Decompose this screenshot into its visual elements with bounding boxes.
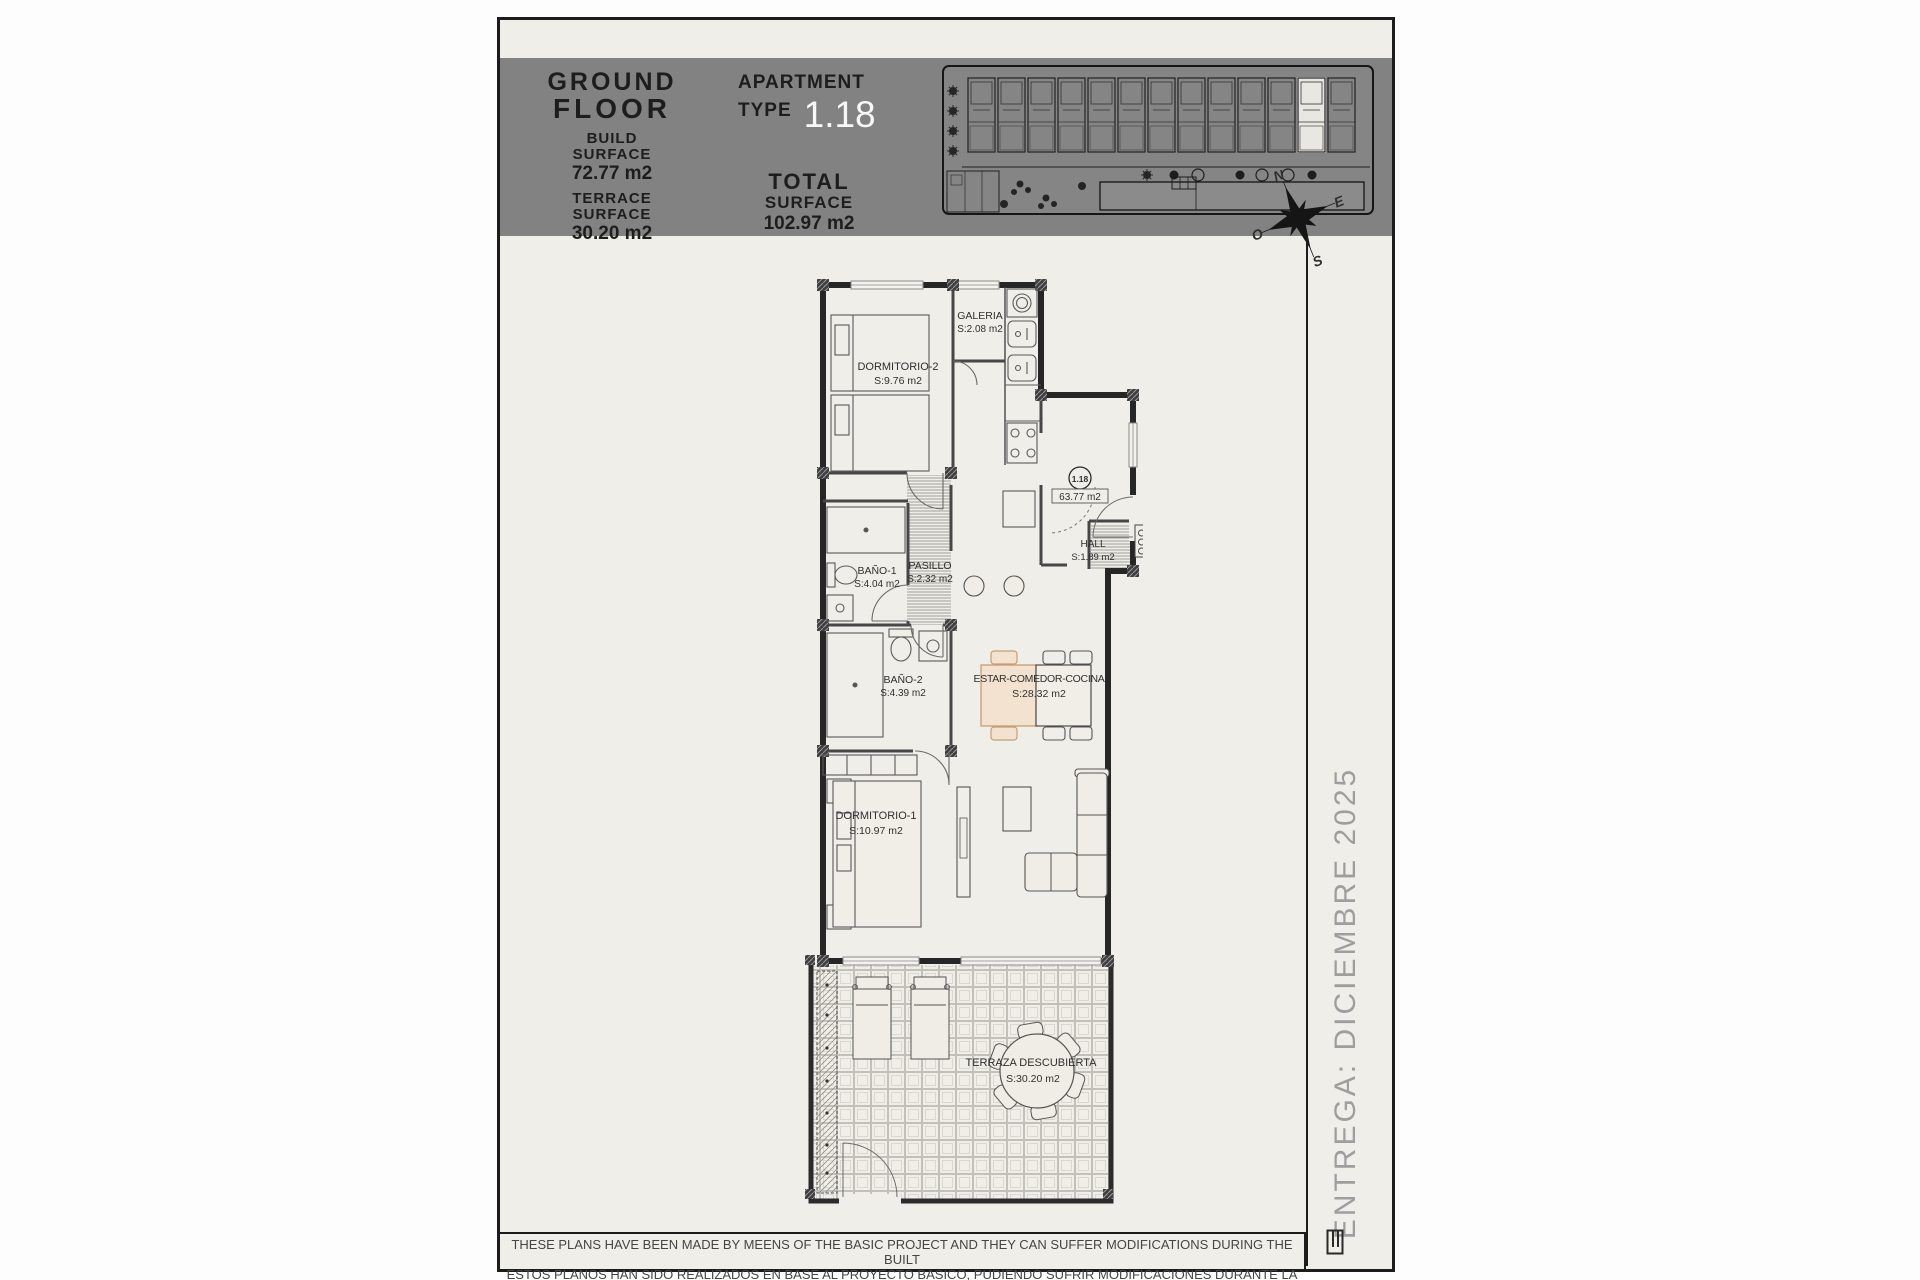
total-surface-value: 102.97 m2: [744, 212, 874, 236]
room-label-bano-2: BAÑO-2 S:4.39 m2: [880, 673, 926, 699]
toilet: [827, 563, 835, 587]
double-bed: [833, 781, 921, 927]
floor-title-block: GROUND FLOOR BUILD SURFACE 72.77 m2 TERR…: [528, 70, 696, 245]
type-value: 1.18: [804, 98, 876, 132]
dining-chair: [1043, 727, 1065, 740]
type-label: TYPE: [738, 100, 792, 122]
total-surface-block: TOTAL SURFACE 102.97 m2: [744, 170, 874, 236]
svg-text:BAÑO-2: BAÑO-2: [883, 673, 922, 686]
svg-text:S:28.32 m2: S:28.32 m2: [1012, 688, 1066, 700]
dining-chair: [1070, 727, 1092, 740]
sink: [1008, 321, 1036, 347]
dining-chair: [1043, 651, 1065, 664]
svg-text:GALERIA: GALERIA: [957, 310, 1003, 322]
bano1-door-arc: [872, 585, 908, 621]
svg-text:S:2.08 m2: S:2.08 m2: [957, 324, 1003, 335]
toilet: [889, 629, 913, 637]
compass-icon: N E S O: [1252, 170, 1344, 270]
apartment-label: APARTMENT: [738, 72, 948, 94]
sun-lounger: [853, 977, 892, 1059]
unit-number-text: 1.18: [1072, 474, 1089, 484]
galeria-kitchen: [953, 287, 1041, 527]
svg-text:DORMITORIO-1: DORMITORIO-1: [835, 810, 916, 822]
dorm1-door-arc: [915, 751, 949, 785]
fridge: [1003, 491, 1035, 527]
delivery-note: ENTREGA: DICIEMBRE 2025: [1329, 767, 1363, 1239]
dining-chair: [1070, 651, 1092, 664]
bano2-door-arc: [911, 625, 943, 657]
sink: [1008, 355, 1036, 381]
header-band: GROUND FLOOR BUILD SURFACE 72.77 m2 TERR…: [500, 58, 1392, 236]
title-block-rule: [1306, 236, 1308, 1266]
compass-west-label: O: [1252, 225, 1265, 244]
svg-text:BAÑO-1: BAÑO-1: [857, 564, 896, 577]
floor-title-line2: FLOOR: [528, 95, 696, 123]
compass-south-label: S: [1310, 251, 1325, 270]
terrace-surface-value: 30.20 m2: [528, 223, 696, 245]
room-label-bano-1: BAÑO-1 S:4.04 m2: [854, 564, 900, 590]
floor-plan: TERRAZA DESCUBIERTA S:30.20 m2: [803, 273, 1143, 1223]
room-bano-1: [827, 507, 908, 621]
washbasin: [827, 595, 853, 621]
svg-text:S:4.39 m2: S:4.39 m2: [880, 688, 926, 699]
useful-area-text: 63.77 m2: [1059, 492, 1101, 503]
compass-east-label: E: [1331, 192, 1344, 211]
terrace-zone: TERRAZA DESCUBIERTA S:30.20 m2: [811, 963, 1111, 1206]
footer-symbol-icon: [1326, 1229, 1344, 1255]
floor-title-line1: GROUND: [528, 70, 696, 95]
svg-text:S:30.20 m2: S:30.20 m2: [1006, 1073, 1060, 1085]
total-label1: TOTAL: [744, 170, 874, 193]
svg-text:S:4.04 m2: S:4.04 m2: [854, 579, 900, 590]
terrace-surface-label1: TERRACE: [528, 191, 696, 207]
svg-text:PASILLO: PASILLO: [909, 560, 952, 572]
coffee-table: [1003, 787, 1031, 831]
disclaimer-line-en: THESE PLANS HAVE BEEN MADE BY MEENS OF T…: [500, 1237, 1304, 1267]
total-label2: SURFACE: [744, 193, 874, 212]
svg-text:HALL: HALL: [1080, 539, 1105, 550]
room-dormitorio-1: [823, 751, 949, 929]
dining-chair-accent: [991, 727, 1017, 740]
sofa: [1077, 773, 1107, 897]
washing-machine: [1007, 289, 1037, 317]
sun-lounger: [911, 977, 950, 1059]
build-surface-value: 72.77 m2: [528, 163, 696, 185]
svg-text:TERRAZA DESCUBIERTA: TERRAZA DESCUBIERTA: [965, 1057, 1097, 1069]
svg-text:S:1.89 m2: S:1.89 m2: [1071, 552, 1114, 563]
build-surface-label1: BUILD: [528, 131, 696, 147]
room-label-galeria: GALERIA S:2.08 m2: [957, 310, 1003, 335]
svg-text:DORMITORIO-2: DORMITORIO-2: [857, 361, 938, 373]
pasillo-floor-hatch: [907, 475, 951, 625]
gate-opening: [839, 1194, 901, 1206]
screenshot-stage: GROUND FLOOR BUILD SURFACE 72.77 m2 TERR…: [0, 0, 1920, 1280]
disclaimer-line-es: ESTOS PLANOS HAN SIDO REALIZADOS EN BASE…: [500, 1267, 1304, 1280]
wardrobe: [823, 755, 917, 775]
build-surface-label2: SURFACE: [528, 147, 696, 163]
svg-text:ESTAR-COMEDOR-COCINA: ESTAR-COMEDOR-COCINA: [974, 673, 1105, 685]
room-label-dormitorio-2: DORMITORIO-2 S:9.76 m2: [857, 361, 938, 387]
svg-text:S:10.97 m2: S:10.97 m2: [849, 825, 903, 837]
room-estar-comedor: [957, 576, 1109, 897]
bar-stool: [1004, 576, 1024, 596]
dining-chair-accent: [991, 651, 1017, 664]
tv-unit: [957, 787, 970, 897]
disclaimer-footer: THESE PLANS HAVE BEEN MADE BY MEENS OF T…: [500, 1232, 1306, 1269]
bar-stool: [964, 576, 984, 596]
svg-text:S:9.76 m2: S:9.76 m2: [874, 375, 922, 387]
terrace-surface-label2: SURFACE: [528, 207, 696, 223]
apartment-type-block: APARTMENT TYPE 1.18: [738, 72, 948, 132]
compass-north-label: N: [1271, 170, 1287, 184]
svg-text:S:2.32 m2: S:2.32 m2: [907, 574, 953, 585]
plan-sheet-page: GROUND FLOOR BUILD SURFACE 72.77 m2 TERR…: [497, 17, 1395, 1272]
